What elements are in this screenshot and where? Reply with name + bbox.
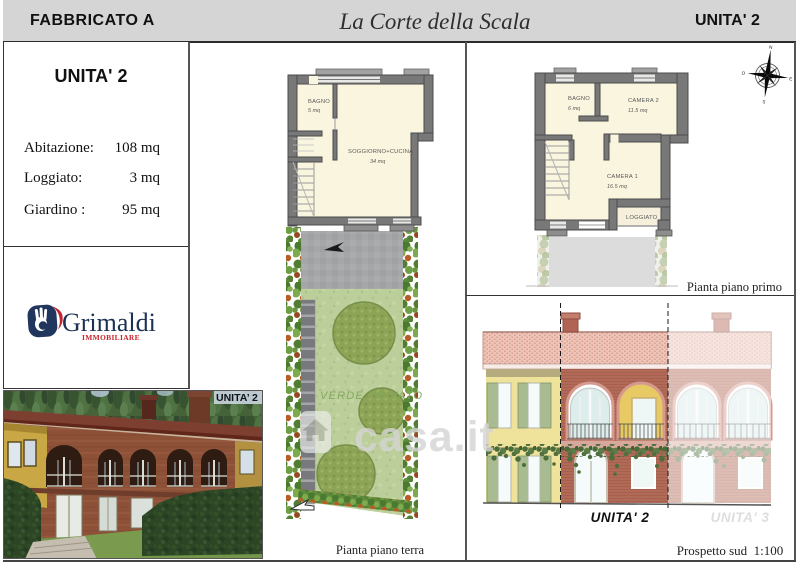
svg-text:casa.it: casa.it (354, 413, 495, 461)
svg-text:N: N (769, 45, 773, 50)
svg-text:6 mq: 6 mq (568, 106, 581, 112)
svg-text:11.5 mq: 11.5 mq (628, 108, 648, 114)
svg-text:UNITA’ 2: UNITA’ 2 (216, 392, 258, 404)
svg-text:IMMOBILIARE: IMMOBILIARE (82, 333, 140, 342)
svg-text:BAGNO: BAGNO (568, 96, 590, 102)
svg-text:S: S (762, 99, 766, 104)
svg-text:BAGNO: BAGNO (308, 99, 330, 105)
svg-text:CAMERA 1: CAMERA 1 (607, 174, 638, 180)
svg-text:5 mq: 5 mq (308, 108, 321, 114)
svg-text:UNITA' 2: UNITA' 2 (591, 510, 650, 525)
svg-text:CAMERA 2: CAMERA 2 (628, 98, 659, 104)
svg-text:LOGGIATO: LOGGIATO (626, 215, 658, 221)
svg-text:SOGGIORNO+CUCINA: SOGGIORNO+CUCINA (348, 149, 413, 155)
svg-text:O: O (741, 70, 746, 75)
svg-text:UNITA' 3: UNITA' 3 (711, 510, 770, 525)
svg-text:16.5 mq: 16.5 mq (607, 184, 628, 190)
svg-text:E: E (789, 76, 793, 81)
svg-text:34 mq: 34 mq (370, 159, 386, 165)
